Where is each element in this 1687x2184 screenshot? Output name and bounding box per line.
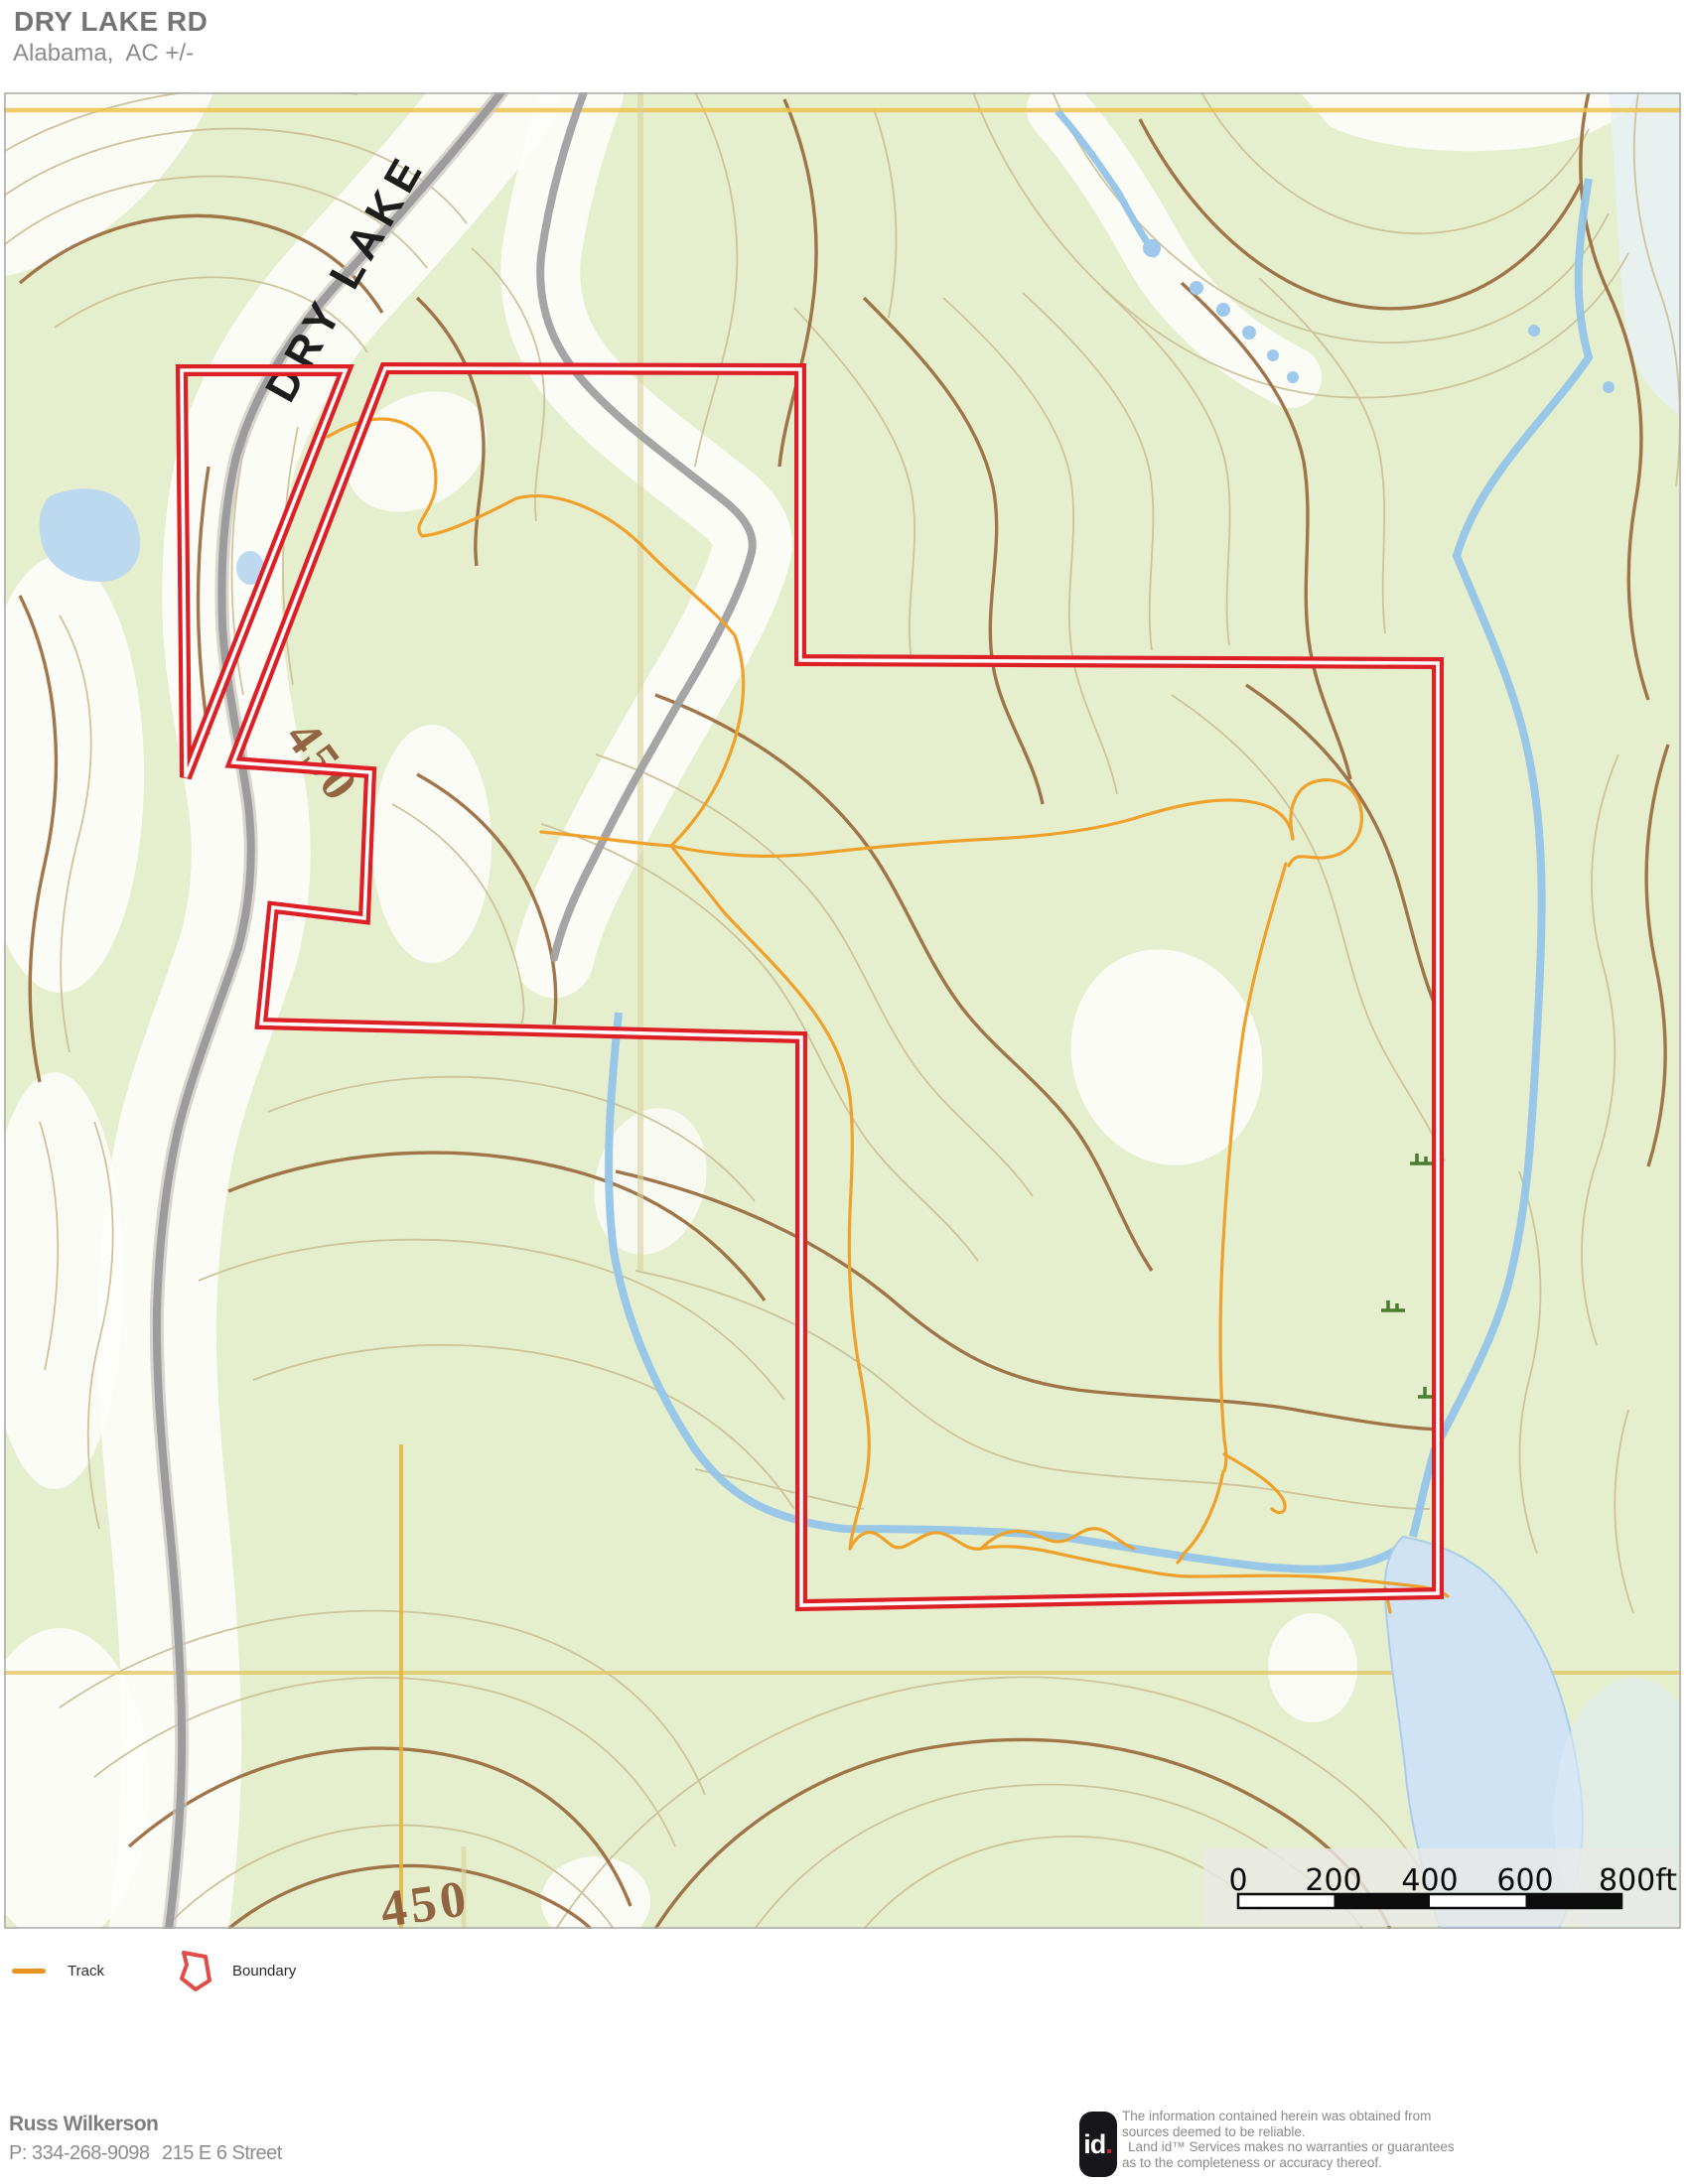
disclaimer-line-4: as to the completeness or accuracy there… xyxy=(1122,2155,1683,2171)
page-title: DRY LAKE RD xyxy=(14,6,208,38)
legend-item-boundary: Boundary xyxy=(177,1941,296,2000)
map-canvas[interactable]: DRY LAKE 450 450 xyxy=(4,92,1681,1929)
legend-track-label: Track xyxy=(68,1963,104,1979)
contact-name: Russ Wilkerson xyxy=(9,2113,158,2136)
track-line-icon xyxy=(12,1969,46,1974)
disclaimer-line-1: The information contained herein was obt… xyxy=(1122,2109,1683,2124)
contact-address: 215 E 6 Street xyxy=(162,2142,282,2165)
land-id-logo-text: id xyxy=(1083,2129,1105,2160)
contact-phone: P: 334-268-9098 xyxy=(9,2142,150,2165)
scale-bar: 0 200 400 600 800ft xyxy=(1203,1848,1677,1926)
disclaimer: The information contained herein was obt… xyxy=(1122,2109,1683,2170)
page-subtitle: Alabama, AC +/- xyxy=(13,40,194,68)
land-id-logo-dot: . xyxy=(1105,2129,1113,2160)
boundary-polygon-icon xyxy=(177,1949,212,1992)
legend-item-track: Track xyxy=(12,1941,104,2000)
disclaimer-line-2: sources deemed to be reliable. xyxy=(1122,2124,1683,2140)
land-id-logo: id. xyxy=(1079,2112,1117,2177)
legend: Track Boundary xyxy=(0,1941,1687,2000)
disclaimer-line-3: Land id™ Services makes no warranties or… xyxy=(1122,2139,1683,2155)
topo-map[interactable]: DRY LAKE 450 450 xyxy=(4,92,1681,1929)
legend-boundary-label: Boundary xyxy=(232,1963,296,1979)
page: DRY LAKE RD Alabama, AC +/- xyxy=(0,0,1687,2184)
